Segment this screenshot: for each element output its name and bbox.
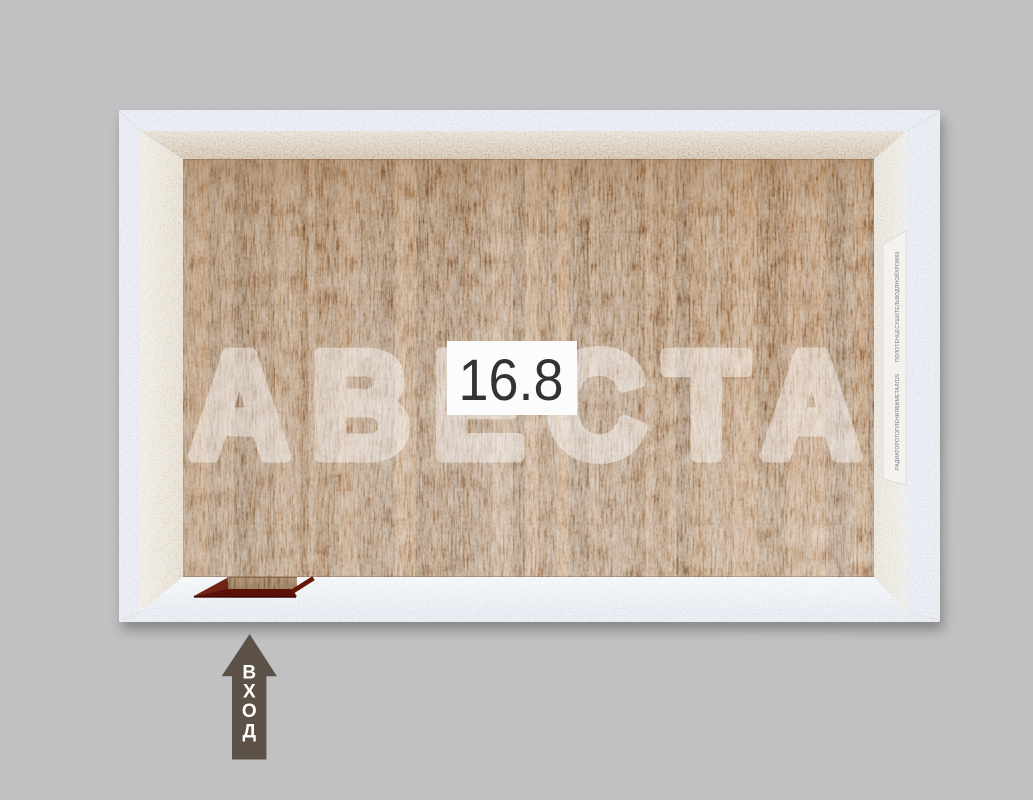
svg-text:16.8: 16.8 [459,347,564,412]
svg-text:В: В [242,663,256,684]
svg-text:Д: Д [243,722,257,743]
svg-text:ПОЛОТЕНЦЕСУШИТЕЛЬВОДЯНОЙХРОМ60: ПОЛОТЕНЦЕСУШИТЕЛЬВОДЯНОЙХРОМ60 [893,251,901,362]
svg-text:О: О [242,701,257,722]
svg-text:Х: Х [243,682,256,703]
svg-text:РАДИАТОРОТОПЛЕНИЯБИМЕТАЛЛ25: РАДИАТОРОТОПЛЕНИЯБИМЕТАЛЛ25 [895,374,901,470]
